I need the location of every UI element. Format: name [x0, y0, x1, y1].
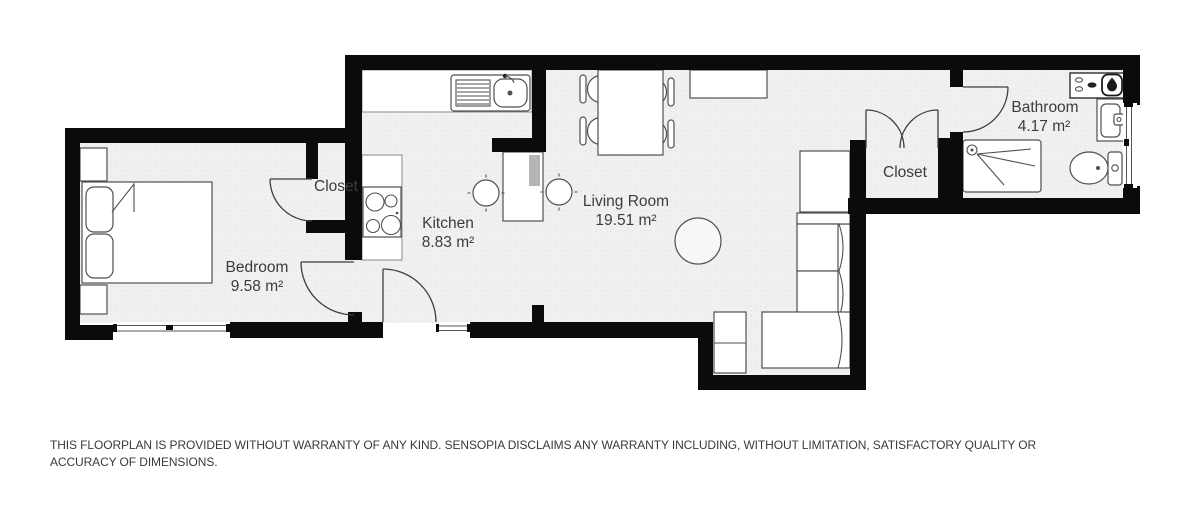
wall — [532, 55, 546, 152]
nightstand — [80, 285, 107, 314]
toilet-tank — [1108, 152, 1122, 185]
sofa-seat — [797, 224, 838, 271]
stove-knob — [396, 212, 399, 215]
wall — [492, 138, 532, 152]
living-room-label: Living Room — [583, 193, 669, 210]
wall — [938, 138, 952, 198]
bathroom-area-label: 4.17 m² — [1018, 118, 1071, 135]
kitchen-table — [503, 152, 543, 221]
wall — [306, 220, 346, 233]
disclaimer-text: THIS FLOORPLAN IS PROVIDED WITHOUT WARRA… — [50, 437, 1098, 471]
bathroom-window — [1123, 103, 1137, 188]
living-room-area-label: 19.51 m² — [595, 212, 656, 229]
pillow — [86, 234, 113, 278]
pouf — [675, 218, 721, 264]
bedroom-label: Bedroom — [226, 259, 289, 276]
bedroom-window — [113, 322, 230, 335]
hall-closet-label: Closet — [883, 164, 928, 181]
dining-table — [598, 70, 663, 155]
stove — [363, 187, 401, 237]
wall — [345, 322, 383, 338]
pillow — [86, 187, 113, 232]
sofa-armrest — [797, 213, 850, 224]
bathroom-sink — [1097, 99, 1124, 141]
wall — [1123, 55, 1140, 105]
wall — [698, 375, 866, 390]
entry-window — [436, 322, 470, 336]
cabinet — [800, 151, 850, 212]
sofa-seat — [797, 271, 838, 318]
wall — [348, 312, 362, 324]
wall — [65, 128, 345, 143]
bed — [82, 182, 212, 283]
bathroom-label: Bathroom — [1011, 99, 1078, 116]
boiler — [1070, 73, 1124, 98]
faucet-icon — [1114, 114, 1124, 125]
wall — [345, 55, 1140, 70]
bedroom-closet-label: Closet — [314, 178, 359, 195]
sideboard — [690, 70, 767, 98]
kitchen-label: Kitchen — [422, 215, 474, 232]
bedroom-area-label: 9.58 m² — [231, 278, 284, 295]
wall — [230, 322, 345, 338]
kitchen-area-label: 8.83 m² — [422, 234, 475, 251]
sofa-chaise — [762, 312, 850, 368]
wall — [345, 55, 362, 260]
floorplan-page: Bedroom 9.58 m² Closet Kitchen 8.83 m² L… — [0, 0, 1200, 515]
drain-dot — [508, 91, 513, 96]
toilet — [1070, 152, 1122, 185]
shower — [963, 140, 1041, 192]
nightstand — [80, 148, 107, 181]
kitchen-sink — [451, 74, 530, 111]
table-accessory — [529, 155, 540, 186]
wall — [950, 132, 963, 198]
wall — [65, 128, 80, 340]
wall — [470, 322, 713, 338]
chair-back — [580, 117, 586, 145]
wall — [848, 198, 1140, 214]
side-table — [714, 312, 746, 373]
wall — [532, 305, 544, 322]
chair-back — [668, 78, 674, 106]
wall — [950, 68, 963, 87]
wall — [65, 325, 113, 340]
wall — [306, 143, 318, 179]
chair-back — [668, 120, 674, 148]
chair-back — [580, 75, 586, 103]
toilet-bowl — [1070, 152, 1108, 184]
wall — [850, 140, 866, 390]
wall — [1123, 186, 1140, 214]
